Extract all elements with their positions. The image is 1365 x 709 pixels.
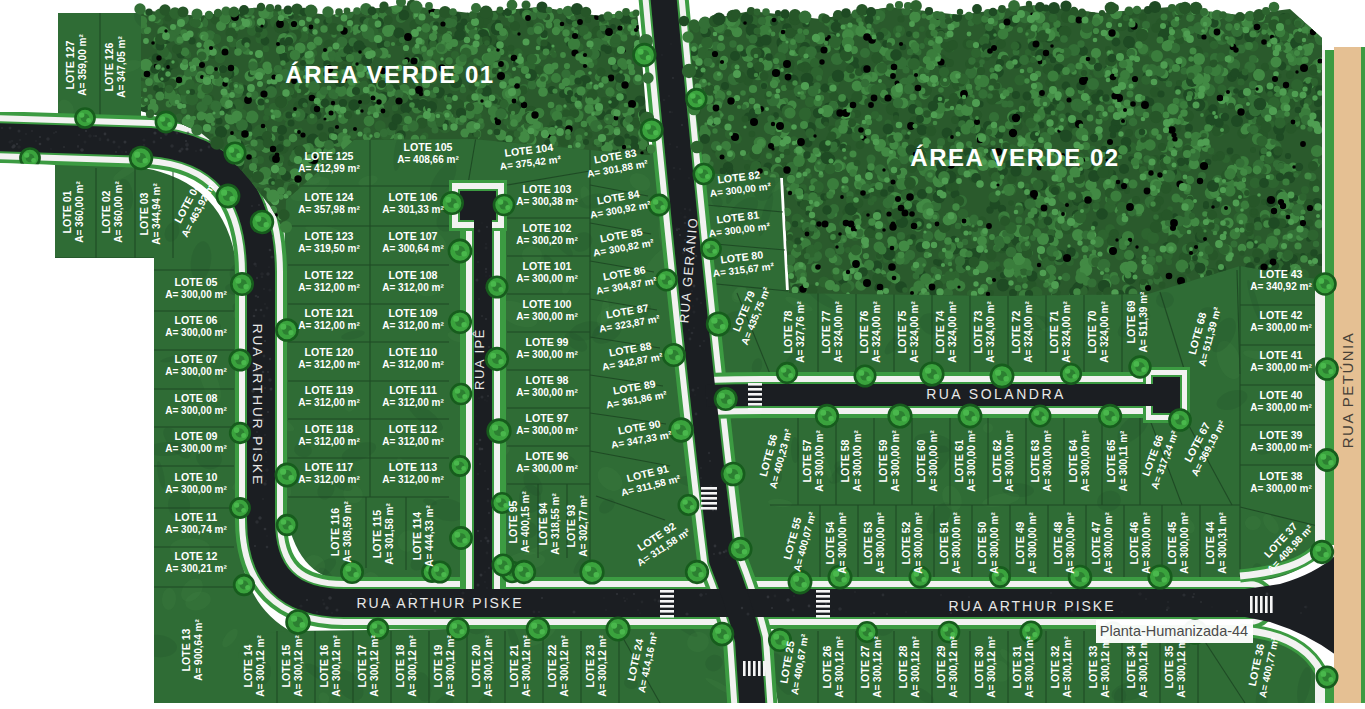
svg-text:RUA ARTHUR PISKE: RUA ARTHUR PISKE	[356, 595, 523, 611]
svg-text:RUA ARTHUR PISKE: RUA ARTHUR PISKE	[948, 598, 1115, 614]
svg-text:ÁREA VERDE 02: ÁREA VERDE 02	[910, 144, 1119, 171]
svg-text:ÁREA VERDE 01: ÁREA VERDE 01	[285, 61, 494, 88]
svg-text:Planta-Humanizada-44: Planta-Humanizada-44	[1100, 623, 1248, 639]
svg-text:RUA IPÊ: RUA IPÊ	[472, 328, 487, 390]
svg-text:RUA ARTHUR PISKE: RUA ARTHUR PISKE	[250, 324, 265, 486]
svg-text:RUA SOLANDRA: RUA SOLANDRA	[926, 386, 1066, 402]
svg-text:RUA PETÚNIA: RUA PETÚNIA	[1339, 332, 1356, 449]
